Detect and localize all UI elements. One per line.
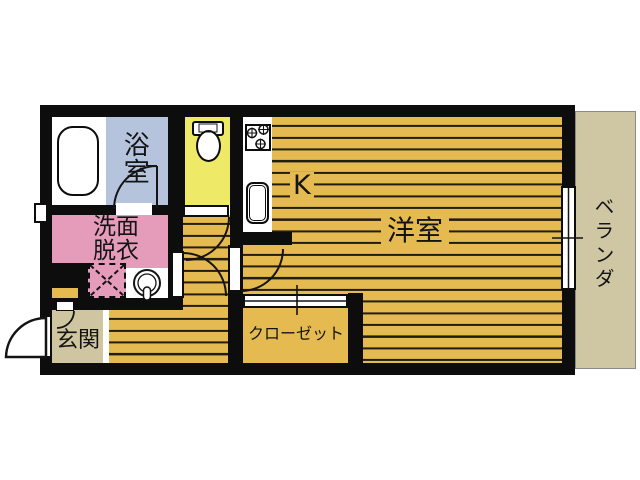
toilet-bowl bbox=[196, 130, 221, 162]
wall-bath-toilet bbox=[168, 105, 185, 215]
balcony-sliding-window bbox=[561, 186, 576, 290]
kitchen-sink bbox=[246, 182, 269, 224]
closet-sliding-door bbox=[243, 294, 348, 308]
bathroom-label: 浴室 bbox=[120, 131, 147, 185]
bathtub bbox=[57, 126, 99, 196]
entrance-door-leaf bbox=[40, 315, 52, 358]
wall-right-upper bbox=[562, 105, 575, 187]
wall-top bbox=[40, 105, 575, 117]
wall-bottom bbox=[40, 363, 575, 375]
small-window bbox=[34, 203, 48, 223]
washroom-label: 洗面 脱衣 bbox=[86, 215, 146, 263]
floor-plan-canvas: 浴室 洗面 脱衣 K 洋室 クローゼット 玄関 ベランダ bbox=[0, 0, 640, 480]
washroom-door-leaf bbox=[171, 251, 184, 298]
veranda-label: ベランダ bbox=[592, 196, 613, 292]
kitchen-sink-inner bbox=[249, 185, 266, 221]
wall-toilet-kitchen bbox=[230, 105, 243, 245]
toilet-door-leaf bbox=[183, 205, 229, 217]
entrance-step-threshold bbox=[103, 308, 109, 363]
gas-stove bbox=[245, 124, 271, 151]
living-room-door-leaf bbox=[228, 246, 242, 292]
washroom-label-line2: 脱衣 bbox=[93, 238, 139, 264]
hallway-floor-bottom bbox=[109, 310, 243, 363]
wash-basin-counter bbox=[126, 268, 168, 298]
kitchen-label: K bbox=[290, 172, 314, 200]
living-room-label: 洋室 bbox=[381, 213, 449, 249]
closet-label: クローゼット bbox=[241, 326, 351, 343]
entrance-label: 玄関 bbox=[54, 329, 102, 352]
washroom-label-line1: 洗面 bbox=[93, 214, 139, 240]
washing-machine-pan bbox=[88, 263, 126, 298]
wall-under-counter bbox=[243, 232, 292, 245]
wall-right-lower bbox=[562, 289, 575, 375]
shoe-cabinet-door-leaf bbox=[56, 301, 74, 311]
